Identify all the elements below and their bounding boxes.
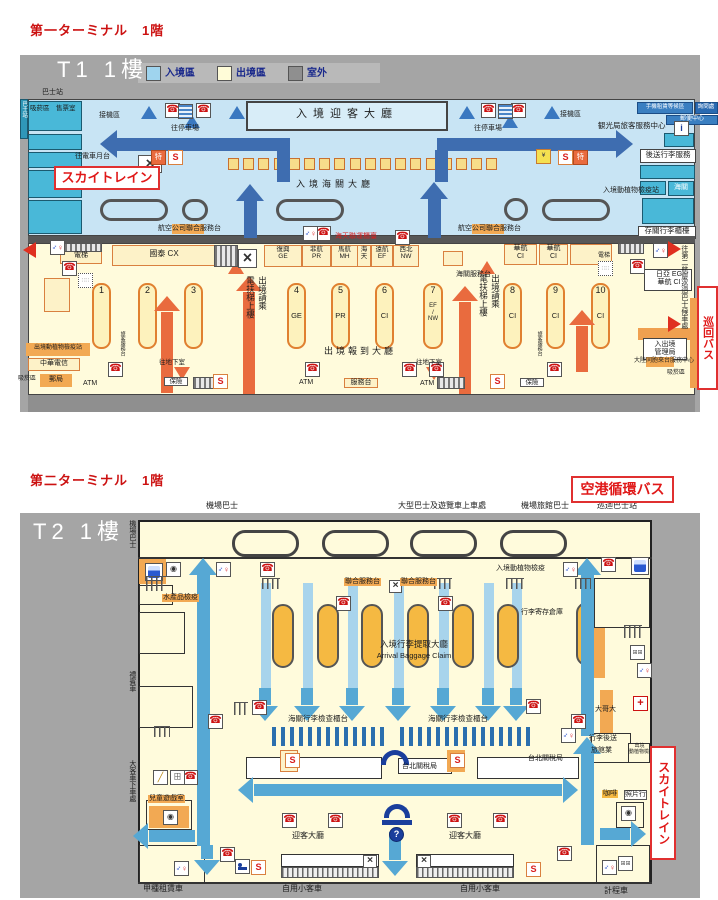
greeting-area-label: 接機區 — [560, 111, 581, 119]
counter-number: 9 — [546, 285, 565, 295]
parking-triangle-icon — [544, 106, 560, 119]
t2-back-wall — [138, 882, 652, 884]
camera-icon-glyph: ◉ — [625, 809, 632, 817]
t2-arrow-left — [133, 823, 195, 849]
private-car-label: 自用小客車 — [282, 885, 322, 894]
t1-cart-squares — [395, 158, 406, 170]
phone-icon-glyph: ☎ — [209, 716, 222, 726]
atm-label: ATM — [420, 380, 434, 388]
arrow-shaft — [437, 688, 449, 705]
camera-icon-glyph: ◉ — [170, 565, 177, 573]
restroom-icon-glyph: ♀ — [571, 566, 577, 574]
departure-quarantine-label: 出境動植物檢疫站 — [26, 345, 90, 352]
arrow-shaft — [197, 575, 210, 846]
phone-icon: ☎ — [328, 813, 343, 828]
atm-label: ATM — [83, 380, 97, 388]
greeting-hall-label: 迎客大廳 — [449, 832, 481, 841]
rail-crossing-icon: × — [238, 249, 257, 268]
t2-bus-bay3 — [410, 530, 477, 557]
t1-legend: 入境區 出境區 室外 — [146, 66, 327, 81]
t1-right-room2 — [640, 165, 695, 179]
pencil-icon: ╱ — [153, 770, 168, 785]
counter-number: 7 — [423, 285, 443, 295]
atm-label: ATM — [299, 379, 313, 387]
restroom-icon: ♂♀ — [561, 728, 576, 743]
counter-code: CI — [503, 312, 522, 320]
phone-icon-glyph: ☎ — [221, 849, 234, 859]
inquiry-label: 詢問處 — [695, 104, 717, 110]
airline-mh-label: 馬航MH — [331, 246, 358, 261]
playroom-label: 兒童遊戲室 — [148, 795, 185, 803]
t1-arrow-arrivals-right — [437, 130, 633, 159]
t2-meeting-bar — [382, 820, 412, 825]
money-exchange-icon: S — [285, 753, 300, 768]
phone-icon: ☎ — [316, 226, 331, 241]
t1-arrow-arrivals-left — [100, 130, 290, 159]
phone-icon: ☎ — [336, 596, 351, 611]
legend-arrival: 入境區 — [146, 66, 195, 81]
phone-icon: ☎ — [62, 261, 77, 276]
counter-number: 8 — [503, 285, 522, 295]
phone-icon: ☎ — [526, 699, 541, 714]
airport-terminal-floor-maps: 第一ターミナル 1階 第二ターミナル 1階 T1 1樓 入境區 出境區 室外 T… — [0, 0, 718, 900]
baggage-claim-label: 入境行李提取大廳 — [369, 640, 459, 650]
parking-triangle-icon — [459, 106, 475, 119]
locker-icon: ⊞⊞ — [618, 856, 633, 871]
t2-carousel — [272, 604, 294, 668]
t1-cart-squares — [365, 158, 376, 170]
counter-number: 6 — [375, 285, 394, 295]
t2-counter-row — [246, 757, 382, 779]
arrow-shaft — [576, 326, 588, 372]
arrow-shaft — [510, 688, 522, 705]
smoking-label: 吸菸區 — [667, 370, 685, 377]
arrow-head — [382, 861, 408, 876]
phone-icon: ☎ — [493, 813, 508, 828]
restroom-icon-glyph: ♀ — [224, 566, 230, 574]
arrow-head — [194, 860, 220, 875]
camera-icon-glyph: ◉ — [167, 813, 174, 821]
t2-flow-bar — [394, 583, 404, 688]
bus-stop-vert-label: 巴士站 — [21, 101, 27, 118]
phone-icon: ☎ — [108, 362, 123, 377]
t1-cart-squares — [243, 158, 254, 170]
airport-bus-vert-label: 機場巴士 — [128, 520, 136, 548]
money-exchange-icon-glyph: S — [289, 756, 295, 765]
stairs-icon — [214, 245, 238, 267]
quarantine-label: 入境動植物檢疫 — [496, 565, 545, 573]
rental-car-label: 甲種租賃車 — [143, 885, 183, 894]
ticket-office-label: 售票室 — [56, 105, 76, 112]
skytrain-callout-t1: スカイトレイン — [54, 166, 160, 190]
escalator-note: 出境請乘 — [257, 276, 267, 310]
money-exchange-icon-glyph: S — [255, 863, 261, 872]
arrow-shaft — [201, 845, 213, 859]
locker-icon-glyph: ⊞⊞ — [620, 861, 630, 867]
restroom-icon: ♂♀ — [303, 226, 318, 241]
t1-cart-squares — [380, 158, 391, 170]
phone-icon: ☎ — [557, 846, 572, 861]
phone-icon: ☎ — [395, 230, 410, 245]
phone-icon-glyph: ☎ — [396, 232, 409, 242]
shuttle-stop-label: 巡迴巴士站 — [597, 502, 637, 511]
money-exchange-icon: S — [213, 374, 228, 389]
mail-icon: 田 — [170, 770, 185, 785]
counter-number: 4 — [287, 285, 306, 295]
arrow-shaft — [600, 828, 630, 840]
t2-page-title: 第二ターミナル 1階 — [30, 474, 164, 489]
phone-icon: ☎ — [260, 562, 275, 577]
to-parking-label: 往停車場 — [171, 125, 199, 133]
joint-service-label: 聯合服務台 — [400, 578, 437, 586]
restroom-icon-glyph: ♀ — [645, 667, 651, 675]
legend-arrival-label: 入境區 — [165, 68, 195, 79]
phone-icon: ☎ — [282, 813, 297, 828]
t2-arrow-down-left — [194, 845, 220, 875]
money-exchange-icon-glyph: S — [217, 377, 223, 386]
rack-icon — [262, 578, 280, 589]
phone-icon: ☎ — [571, 714, 586, 729]
mobile-phone-label: 大哥大 — [595, 706, 616, 714]
t2-right-room1 — [594, 578, 650, 628]
phone-icon: ☎ — [183, 770, 198, 785]
phone-icon-glyph: ☎ — [494, 815, 507, 825]
t1-carousel4 — [504, 198, 528, 221]
greeting-hall-label: 迎客大廳 — [292, 832, 324, 841]
camera-icon: ◉ — [166, 562, 181, 577]
arrow-shaft — [117, 138, 290, 151]
service-icon-glyph: 特 — [577, 154, 584, 161]
rail-crossing-icon-glyph: × — [243, 250, 252, 266]
cafe-label: 咖啡 — [602, 790, 618, 798]
counter-code: EF/NW — [423, 303, 443, 323]
airline-ci-label: 華航CI — [504, 245, 537, 261]
restroom-icon: ♂♀ — [50, 240, 65, 255]
airline-ef-label: 遠航EF — [371, 246, 393, 261]
stairs-icon — [64, 243, 102, 252]
baggage-storage-label: 行李寄存倉庫 — [521, 609, 563, 617]
hotel-bus-label: 機場旅館巴士 — [521, 502, 569, 511]
photo-shop-label: 照片行 — [624, 790, 647, 800]
phone-icon: ☎ — [630, 259, 645, 274]
hotel-desk-label: 旅館業 — [591, 747, 612, 755]
t1-right-room4 — [642, 198, 694, 224]
t2-flow-bar — [303, 583, 313, 688]
phone-icon-glyph: ☎ — [572, 716, 585, 726]
taipei-customs-label: 台北關稅局 — [402, 763, 437, 771]
info-icon-glyph: i — [680, 124, 683, 133]
gate-x-icon-glyph: × — [421, 856, 427, 866]
restroom-icon-glyph: ♀ — [58, 244, 64, 252]
money-exchange-icon: S — [558, 150, 573, 165]
t1-cart-squares — [304, 158, 315, 170]
elevator-dots-icon-glyph: ∷∷ — [602, 266, 610, 272]
t2-customs-comb — [272, 727, 389, 746]
money-exchange-icon: S — [251, 860, 266, 875]
arrow-shaft — [392, 688, 404, 705]
arrow-head — [420, 182, 448, 199]
arrow-shaft — [254, 784, 562, 796]
elevator-dots-icon-glyph: ∷∷ — [82, 278, 90, 284]
restroom-icon: ♂♀ — [563, 562, 578, 577]
departure-swatch — [217, 66, 232, 81]
counter-number: 2 — [138, 285, 157, 295]
phone-icon: ☎ — [447, 813, 462, 828]
arrival-swatch — [146, 66, 161, 81]
counter-number: 3 — [184, 285, 203, 295]
customs-inspection-label: 海關行李檢查櫃台 — [428, 715, 488, 723]
phone-icon-glyph: ☎ — [109, 364, 122, 374]
counter-code: PR — [331, 312, 350, 320]
insurance-label: 保險 — [164, 377, 188, 386]
airline-ci-label: 華航CI — [539, 245, 568, 261]
escalator-note: 電扶梯上樓 — [478, 274, 488, 317]
t2-left-room2 — [139, 612, 185, 654]
escalator-note: 電扶梯上樓 — [245, 276, 255, 319]
legend-outdoor-label: 室外 — [307, 68, 327, 79]
gate-x-icon-glyph: × — [367, 856, 373, 866]
t1-carousel2 — [182, 199, 208, 221]
arrow-head — [563, 777, 578, 803]
phone-icon-glyph: ☎ — [548, 364, 561, 374]
phone-icon-glyph: ☎ — [337, 598, 350, 608]
phone-icon: ☎ — [402, 362, 417, 377]
elevator-dots-icon: ∷∷ — [598, 261, 613, 276]
counter-code: CI — [546, 312, 565, 320]
elevator-label: 電梯 — [64, 252, 98, 260]
t1-cart-squares — [228, 158, 239, 170]
shuttle-bus-callout-partial: 巡回バス — [697, 286, 718, 390]
gate-x-icon: × — [363, 855, 377, 868]
smoking-label: 吸菸區 — [30, 105, 50, 112]
restroom-icon: ♂♀ — [653, 243, 668, 258]
question-info-icon: ? — [389, 827, 404, 842]
locker-icon: ⊞⊞ — [630, 645, 645, 660]
arrow-shaft — [437, 138, 616, 151]
bed-glyph — [238, 867, 247, 870]
money-exchange-icon-glyph: S — [494, 377, 500, 386]
arrow-shaft — [301, 688, 313, 705]
t1-left-room2 — [28, 134, 82, 150]
t1-cart-squares — [456, 158, 467, 170]
phone-icon: ☎ — [481, 103, 496, 118]
phone-icon: ☎ — [305, 362, 320, 377]
airline-seaair-label: 海天 — [357, 246, 371, 261]
mail-icon-glyph: 田 — [174, 774, 181, 781]
phone-icon-glyph: ☎ — [602, 559, 615, 569]
money-exchange-icon-glyph: S — [172, 153, 178, 162]
t2-carousel — [497, 604, 519, 668]
arrow-head — [238, 777, 253, 803]
phone-icon: ☎ — [252, 700, 267, 715]
phone-icon-glyph: ☎ — [403, 364, 416, 374]
arrow-head — [133, 823, 148, 849]
coach-boarding-label: 大型巴士及遊覽車上車處 — [398, 502, 486, 511]
phone-icon-glyph: ☎ — [631, 261, 644, 271]
arrow-shaft — [149, 830, 195, 842]
t1-road — [28, 395, 695, 412]
money-exchange-icon-glyph: S — [562, 153, 568, 162]
parking-triangle-icon — [141, 106, 157, 119]
arrow-head — [385, 706, 411, 721]
legend-departure-label: 出境區 — [236, 68, 266, 79]
phone-icon-glyph: ☎ — [166, 105, 179, 115]
phone-icon-glyph: ☎ — [482, 105, 495, 115]
t2-bus-bay1 — [232, 530, 299, 557]
t1-arrow-up-2 — [420, 182, 449, 238]
t1-arrow-up-1 — [236, 184, 265, 238]
phone-icon-glyph: ☎ — [63, 263, 76, 273]
arrival-customs-hall-label: 入境海關大廳 — [296, 179, 374, 189]
legend-departure: 出境區 — [217, 66, 266, 81]
arrow-shaft — [581, 754, 594, 845]
t2-left-room3 — [139, 686, 193, 728]
counter-code: CI — [375, 312, 394, 320]
smoking-label: 吸菸區 — [18, 376, 36, 383]
arrow-head — [189, 558, 217, 575]
animal-plant-quarantine-label: 入境動植物檢疫站 — [603, 187, 659, 195]
restroom-icon-glyph: ♀ — [610, 864, 616, 872]
phone-icon-glyph: ☎ — [448, 815, 461, 825]
airline-pr-label: 菲航PR — [302, 246, 331, 261]
phone-icon-glyph: ☎ — [306, 364, 319, 374]
service-icon: 特 — [151, 150, 166, 165]
bus-dropoff-vert-label: 大客車下車處 — [128, 760, 136, 802]
t1-cart-squares — [471, 158, 482, 170]
postal-center-label: 郵便中心 — [666, 116, 718, 123]
t1-carousel1 — [100, 199, 168, 221]
departure-checkin-hall-label: 出境報到大廳 — [324, 346, 396, 356]
airline-joint-counter-label: 航空公司聯合服務台 — [458, 225, 521, 233]
rack-icon — [146, 576, 166, 591]
arrow-head — [616, 130, 633, 158]
money-exchange-icon: S — [450, 753, 465, 768]
telecom-label: 中華電信 — [28, 360, 80, 368]
phone-icon: ☎ — [438, 596, 453, 611]
aquatic-quarantine-label: 水產品檢疫 — [162, 594, 199, 602]
arrow-head — [631, 821, 646, 847]
arrow-shaft — [428, 199, 441, 238]
arrow-shaft — [346, 688, 358, 705]
question-info-icon-glyph: ? — [394, 830, 400, 839]
restroom-icon-glyph: ♀ — [569, 732, 575, 740]
service-counter-label: 服務台 — [344, 378, 378, 388]
phone-icon: ☎ — [208, 714, 223, 729]
exit-triangle-icon — [23, 242, 36, 258]
restroom-icon: ♂♀ — [174, 861, 189, 876]
restroom-icon-glyph: ♀ — [661, 247, 667, 255]
rack-icon — [234, 702, 248, 715]
rack-icon — [154, 726, 170, 737]
restroom-icon: ♂♀ — [602, 860, 617, 875]
service-icon: 特 — [573, 150, 588, 165]
greeting-area-label: 接機區 — [99, 112, 120, 120]
counter-code: CI — [591, 312, 610, 320]
money-exchange-icon: S — [168, 150, 183, 165]
skytrain-callout-t2: スカイトレイン — [650, 746, 676, 860]
t1-cart-squares — [486, 158, 497, 170]
restroom-icon: ♂♀ — [637, 663, 652, 678]
service-desk-vert-label: 旅客服務台 — [119, 331, 125, 356]
legend-outdoor: 室外 — [288, 66, 327, 81]
arrow-shaft — [581, 575, 594, 736]
elevator-label: 電梯 — [598, 253, 610, 260]
first-aid-icon-glyph: + — [637, 698, 643, 709]
mini-quarantine-label: 出境動植物檢疫 — [629, 744, 650, 755]
parking-triangle-icon — [229, 106, 245, 119]
phone-icon-glyph: ☎ — [253, 702, 266, 712]
arrival-greeting-hall-label: 入境迎客大廳 — [246, 108, 448, 120]
airport-bus-label: 機場巴士 — [206, 502, 238, 511]
phone-icon: ☎ — [196, 103, 211, 118]
airline-ge-label: 復興GE — [264, 246, 302, 261]
hotel-bed-icon — [235, 859, 250, 874]
post-office-label: 郵局 — [40, 376, 72, 384]
rack-icon — [575, 578, 591, 589]
phone-icon-glyph: ☎ — [283, 815, 296, 825]
t1-page-title: 第一ターミナル 1階 — [30, 24, 164, 39]
bus-icon — [631, 557, 649, 575]
rack-icon — [624, 625, 642, 638]
t1-left-room5 — [28, 200, 82, 234]
t2-flow-bar — [484, 583, 494, 688]
phone-icon-glyph: ☎ — [527, 701, 540, 711]
stairs-icon — [618, 243, 644, 254]
phone-icon-glyph: ☎ — [261, 564, 274, 574]
joint-service-label: 聯合服務台 — [344, 578, 381, 586]
phone-icon-glyph: ☎ — [329, 815, 342, 825]
loop-bus-callout: 空港循環バス — [571, 476, 674, 503]
t1-carousel3 — [276, 199, 344, 221]
camera-icon: ◉ — [163, 810, 178, 825]
t1-cart-squares — [410, 158, 421, 170]
t2-arrow-down — [385, 688, 411, 721]
phone-icon: ☎ — [511, 103, 526, 118]
currency-icon-glyph: ¥ — [542, 153, 546, 160]
counter-number: 10 — [591, 285, 610, 295]
to-t2-shuttle-label: 往第二航廈巡迴巴士候車處 — [680, 245, 688, 329]
counter-number: 5 — [331, 285, 350, 295]
restroom-icon: ♂♀ — [216, 562, 231, 577]
tourism-bureau-label: 観光局旅客服務中心 — [598, 122, 666, 130]
t2-arrow-right — [600, 821, 646, 847]
phone-icon-glyph: ☎ — [197, 105, 210, 115]
private-car-label: 自用小客車 — [460, 885, 500, 894]
to-parking-label: 往停車場 — [474, 125, 502, 133]
pencil-icon-glyph: ╱ — [158, 773, 163, 782]
info-icon: i — [674, 121, 689, 136]
t2-railing-hatch — [416, 867, 514, 878]
elevator-dots-icon: ∷∷ — [78, 273, 93, 288]
t1-cart-squares — [319, 158, 330, 170]
sea-air-counter-label: 海天聯運櫃臺 — [335, 233, 377, 241]
bus-glyph — [634, 560, 647, 572]
bonded-baggage-label: 存關行李櫃檯 — [639, 227, 695, 235]
t1-map-title: T1 1樓 — [57, 58, 148, 83]
t1-customs-desk-box — [443, 251, 463, 266]
t2-bus-bay4 — [500, 530, 567, 557]
taipei-customs-label: 台北關稅局 — [528, 755, 563, 763]
phone-icon-glyph: ☎ — [512, 105, 525, 115]
t2-arrow-horizontal — [238, 777, 578, 803]
currency-icon: ¥ — [536, 149, 551, 164]
taxi-label: 計程車 — [604, 887, 628, 896]
phone-icon-glyph: ☎ — [439, 598, 452, 608]
restroom-icon-glyph: ♀ — [182, 865, 188, 873]
money-exchange-icon-glyph: S — [530, 865, 536, 874]
airline-joint-counter-label: 航空公司聯合服務台 — [158, 225, 221, 233]
arrow-head — [236, 184, 264, 201]
